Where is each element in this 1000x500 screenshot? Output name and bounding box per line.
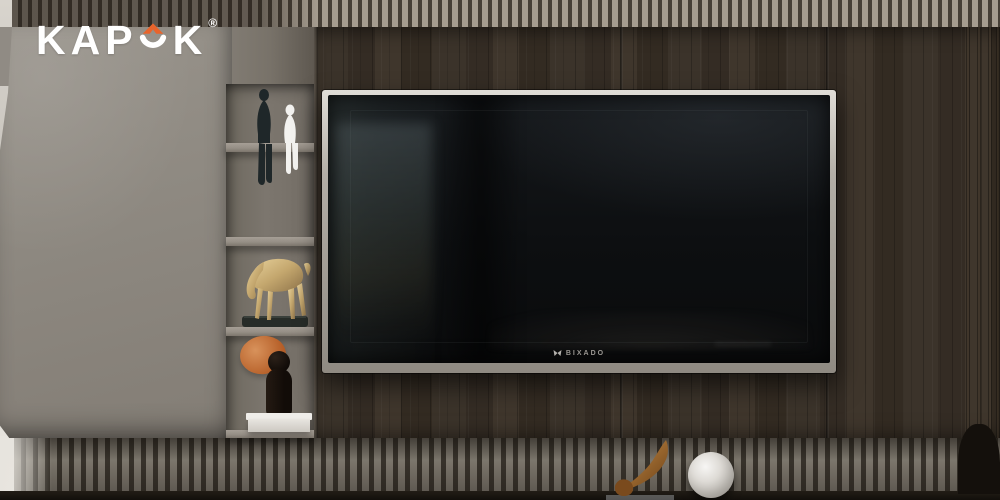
- tv-screen: BIXADO: [328, 95, 830, 363]
- brand-logo: KAP K ®: [36, 20, 217, 61]
- sitting-figurines: [250, 86, 308, 190]
- bottom-slat-shadow: [14, 438, 1000, 494]
- screen-reflection-line: [350, 110, 808, 343]
- brand-o-icon: [137, 21, 169, 54]
- wood-groove: [988, 27, 992, 441]
- horse-sculpture: [234, 242, 316, 330]
- dark-planter-silhouette: [958, 424, 1000, 494]
- wood-groove: [977, 27, 981, 441]
- brand-letters-suffix: K: [173, 20, 208, 61]
- registered-mark: ®: [208, 16, 217, 30]
- screen-watermark: [714, 341, 772, 347]
- tv-brand-logo: BIXADO: [328, 349, 830, 357]
- left-cabinet-panel: [0, 27, 232, 438]
- bronze-abstract-sculpture: [606, 440, 678, 500]
- interior-render: BIXADO KAP K ®: [0, 0, 1000, 500]
- tv: BIXADO: [322, 90, 836, 373]
- brand-letters-prefix: KAP: [36, 20, 138, 61]
- floor: [0, 491, 1000, 500]
- bubble-figurine: [266, 368, 292, 418]
- figurine-base: [248, 419, 310, 432]
- sitting-figurine-black: [257, 89, 272, 185]
- glass-sphere-lamp: [688, 452, 734, 498]
- left-wall-base: [0, 436, 52, 496]
- wood-groove: [996, 27, 1000, 441]
- butterfly-icon: [553, 349, 562, 357]
- wood-panel-edge: [314, 27, 318, 441]
- wood-groove: [966, 27, 970, 441]
- tv-brand-label: BIXADO: [566, 350, 605, 357]
- sitting-figurine-white: [284, 105, 298, 175]
